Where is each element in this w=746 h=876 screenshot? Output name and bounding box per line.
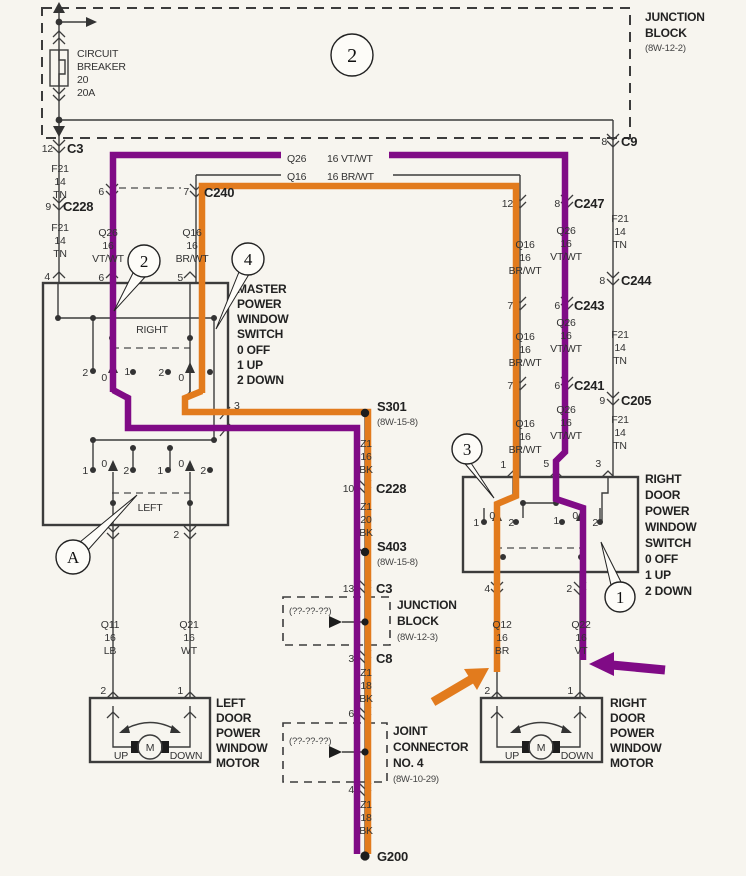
ground-g200-label: G200 [377, 849, 408, 864]
pin-number: 5 [543, 458, 549, 470]
wire-label-q26: 16 [102, 240, 114, 252]
wire-label-f21: 14 [54, 176, 66, 188]
wire-label-q16: Q16 [515, 239, 535, 251]
pin-number: 2 [484, 685, 490, 697]
right-motor-label: POWER [610, 726, 655, 740]
pin-number: 9 [45, 201, 51, 213]
bus-label-q26-spec: 16 VT/WT [327, 153, 373, 165]
connector-c244-label: C244 [621, 273, 652, 288]
right-switch-label: WINDOW [645, 520, 697, 534]
wiring-diagram-page: CIRCUIT BREAKER 20 20A JUNCTION BLOCK (8… [0, 0, 746, 871]
pin-number: 9 [599, 395, 605, 407]
callout-3-label: 3 [463, 440, 471, 459]
wire-label-q16: Q16 [515, 418, 535, 430]
pin-number: 8 [601, 136, 607, 148]
wire-label-f21: 14 [614, 226, 626, 238]
bus-label-q16-spec: 16 BR/WT [327, 171, 375, 183]
pin-number: 1 [177, 685, 183, 697]
bus-label-q16: Q16 [287, 171, 307, 183]
wire-label-q26: VT/WT [92, 253, 124, 265]
contact-number: 2 [82, 367, 88, 379]
arrow-right-icon [86, 17, 97, 27]
junction-block-mid-label: JUNCTION [397, 598, 457, 612]
right-switch-label: DOOR [645, 488, 681, 502]
motor-down-label: DOWN [170, 750, 202, 762]
purple-trace-ground [113, 390, 357, 854]
wire-label-f21: F21 [51, 163, 69, 175]
right-switch-label: SWITCH [645, 536, 691, 550]
wire-label-q26: 16 [560, 417, 572, 429]
wire-label-z1: BK [359, 527, 373, 539]
breaker-label: 20A [77, 87, 95, 99]
contact-number: 2 [592, 517, 598, 529]
wire-label-f21: TN [613, 355, 627, 367]
joint-connector-label: CONNECTOR [393, 740, 469, 754]
pin-number: 6 [348, 708, 354, 720]
breaker-label: 20 [77, 74, 89, 86]
wire-label-q26: Q26 [556, 225, 576, 237]
wire-label-q16: 16 [519, 344, 531, 356]
right-motor-label: WINDOW [610, 741, 662, 755]
splice-s301-label: S301 [377, 399, 407, 414]
joint-connector-unknown: (??-??-??) [289, 736, 331, 747]
wire-label-q22: VT [574, 645, 588, 657]
joint-connector-ref: (8W-10-29) [393, 774, 439, 785]
contact-number: 0 [178, 372, 184, 384]
wire-label-z1: 20 [360, 514, 372, 526]
contact-number: 2 [508, 517, 514, 529]
master-switch-label: SWITCH [237, 327, 283, 341]
master-switch-label: 1 UP [237, 358, 263, 372]
splice-s301-icon [361, 409, 369, 417]
wire-label-q16: 16 [519, 252, 531, 264]
ground-g200-icon [360, 851, 369, 860]
left-motor-label: DOOR [216, 711, 252, 725]
pin-number: 2 [100, 685, 106, 697]
component-boxes [43, 283, 638, 762]
wire-label-f21: 14 [614, 342, 626, 354]
wire-label-z1: Z1 [360, 501, 372, 513]
wire-label-z1: BK [359, 825, 373, 837]
joint-connector-arrow-icon [329, 746, 342, 758]
pin-number: 10 [343, 483, 355, 495]
contact-number: 0 [489, 510, 495, 522]
callout-2-master-label: 2 [140, 252, 148, 271]
wire-label-q16: Q16 [182, 227, 202, 239]
junction-block-top-label: JUNCTION [645, 10, 705, 24]
bus-label-q26: Q26 [287, 153, 307, 165]
wire-label-q16: BR/WT [176, 253, 210, 265]
left-motor-label: MOTOR [216, 756, 260, 770]
left-motor-label: POWER [216, 726, 261, 740]
wire-label-q26: Q26 [98, 227, 118, 239]
contact-number: 0 [101, 372, 107, 384]
master-switch-label: POWER [237, 297, 282, 311]
master-switch-label: WINDOW [237, 312, 289, 326]
pin-number: 7 [507, 380, 513, 392]
wire-label-q22: Q22 [571, 619, 591, 631]
splice-s301-ref: (8W-15-8) [377, 417, 418, 428]
right-motor-label: RIGHT [610, 696, 647, 710]
junction-block-mid-ref: (8W-12-3) [397, 632, 438, 643]
junction-block-top-outline [42, 8, 630, 138]
left-motor-label: LEFT [216, 696, 246, 710]
pin-number: 4 [484, 583, 490, 595]
pin-number: 7 [507, 300, 513, 312]
wire-label-q12: 16 [496, 632, 508, 644]
connector-c247-label: C247 [574, 196, 604, 211]
motor-up-label: UP [505, 750, 519, 762]
pin-number: 12 [502, 198, 514, 210]
wire-label-z1: Z1 [360, 799, 372, 811]
wire-label-q26: Q26 [556, 317, 576, 329]
contact-number: 0 [178, 458, 184, 470]
connector-c243-label: C243 [574, 298, 604, 313]
breaker-label: CIRCUIT [77, 48, 119, 60]
wire-label-q26: VT/WT [550, 430, 582, 442]
pin-number: 6 [98, 186, 104, 198]
purple-pointer-arrow [612, 665, 665, 670]
right-motor-label: DOOR [610, 711, 646, 725]
power-window-wiring-diagram: CIRCUIT BREAKER 20 20A JUNCTION BLOCK (8… [0, 0, 746, 871]
right-switch-label: RIGHT [645, 472, 682, 486]
purple-pointer-arrowhead [589, 652, 614, 676]
breaker-label: BREAKER [77, 61, 126, 73]
motor-m-label: M [537, 742, 546, 754]
contact-number: 1 [124, 366, 130, 378]
pin-number: 6 [554, 380, 560, 392]
pin-number: 7 [183, 186, 189, 198]
wire-label-f21: TN [613, 239, 627, 251]
pin-number: 13 [343, 583, 355, 595]
right-switch-label: 2 DOWN [645, 584, 692, 598]
motor-up-label: UP [114, 750, 128, 762]
wire-label-q11: Q11 [101, 619, 120, 631]
callout-a-label: A [67, 548, 80, 567]
wire-label-q12: BR [495, 645, 510, 657]
wire-label-z1: 16 [360, 451, 372, 463]
orange-pointer-arrow [433, 679, 472, 702]
joint-connector-label: JOINT [393, 724, 428, 738]
connector-c205-label: C205 [621, 393, 651, 408]
contact-number: 0 [572, 510, 578, 522]
arrow-down-icon [53, 126, 65, 137]
contact-number: 2 [200, 465, 206, 477]
contact-number: 1 [157, 465, 163, 477]
junction-block-top-ref: (8W-12-2) [645, 43, 686, 54]
wire-label-q21: 16 [183, 632, 195, 644]
pin-number: 2 [566, 583, 572, 595]
wire-label-q11: 16 [104, 632, 116, 644]
contact-number: 2 [158, 367, 164, 379]
connector-c241-label: C241 [574, 378, 604, 393]
pin-number: 6 [554, 300, 560, 312]
pin-number: 1 [500, 459, 506, 471]
left-motor-label: WINDOW [216, 741, 268, 755]
joint-connector-label: NO. 4 [393, 756, 424, 770]
junction-block-mid-unknown: (??-??-??) [289, 606, 331, 617]
connector-c3-mid-label: C3 [376, 581, 392, 596]
master-switch-label: MASTER [237, 282, 287, 296]
wire-label-f21: F21 [611, 414, 629, 426]
wire-label-z1: Z1 [360, 438, 372, 450]
wire-label-z1: 18 [360, 812, 372, 824]
splice-s403-icon [361, 548, 369, 556]
pin-number: 6 [98, 272, 104, 284]
pin-number: 2 [173, 529, 179, 541]
master-switch-label: 0 OFF [237, 343, 270, 357]
wire-label-q26: Q26 [556, 404, 576, 416]
wire-label-q26: 16 [560, 238, 572, 250]
wire-label-q26: 16 [560, 330, 572, 342]
dashed-outlines [42, 8, 630, 782]
contact-number: 1 [82, 465, 88, 477]
callout-1-label: 1 [616, 588, 624, 607]
contact-number: 0 [101, 458, 107, 470]
motor-m-label: M [146, 742, 155, 754]
right-switch-label: POWER [645, 504, 690, 518]
pin-number: 1 [567, 685, 573, 697]
junction-block-mid-label: BLOCK [397, 614, 439, 628]
connector-c228-label: C228 [63, 199, 93, 214]
wire-label-z1: Z1 [360, 667, 372, 679]
wire-label-q12: Q12 [492, 619, 512, 631]
contact-number: 1 [473, 517, 479, 529]
wire-label-f21: TN [613, 440, 627, 452]
wire-label-q22: 16 [575, 632, 587, 644]
pin-number: 4 [44, 271, 50, 283]
wire-label-q16: 16 [519, 431, 531, 443]
wire-label-q16: BR/WT [509, 444, 543, 456]
wire-label-f21: F21 [51, 222, 69, 234]
pin-number: 12 [42, 143, 54, 155]
wire-label-f21: F21 [611, 213, 629, 225]
connector-c3-label: C3 [67, 141, 83, 156]
wire-label-f21: 14 [614, 427, 626, 439]
wire-label-f21: 14 [54, 235, 66, 247]
wire-label-q21: WT [181, 645, 198, 657]
connector-c8-label: C8 [376, 651, 392, 666]
pin-number: 3 [348, 653, 354, 665]
wire-label-z1: BK [359, 693, 373, 705]
wire-label-q21: Q21 [179, 619, 199, 631]
wire-label-z1: 18 [360, 680, 372, 692]
right-switch-label: 1 UP [645, 568, 671, 582]
contact-number: 2 [123, 465, 129, 477]
callout-2-top-label: 2 [347, 45, 357, 67]
wire-label-q16: 16 [186, 240, 198, 252]
symbols [50, 2, 619, 796]
callout-4-label: 4 [244, 250, 253, 269]
right-motor-label: MOTOR [610, 756, 654, 770]
wire-label-q26: VT/WT [550, 251, 582, 263]
contact-number: 1 [553, 515, 559, 527]
connector-c228-mid-label: C228 [376, 481, 406, 496]
pin-number: 5 [177, 272, 183, 284]
wire-label-z1: BK [359, 464, 373, 476]
junction-block-top-label: BLOCK [645, 26, 687, 40]
connector-c240-label: C240 [204, 185, 234, 200]
motor-down-label: DOWN [561, 750, 593, 762]
master-left-section-label: LEFT [138, 502, 164, 514]
connector-c9-label: C9 [621, 134, 637, 149]
right-switch-label: 0 OFF [645, 552, 678, 566]
pin-number: 8 [599, 275, 605, 287]
junction-block-arrow-icon [329, 616, 342, 628]
master-switch-label: 2 DOWN [237, 373, 284, 387]
wire-label-f21: TN [53, 248, 67, 260]
pin-number: 8 [554, 198, 560, 210]
wire-label-f21: F21 [611, 329, 629, 341]
wire-label-q16: BR/WT [509, 357, 543, 369]
pointer-arrows [433, 652, 665, 702]
wire-label-q16: BR/WT [509, 265, 543, 277]
wire-label-q16: Q16 [515, 331, 535, 343]
pin-number: 3 [234, 400, 240, 412]
splice-s403-ref: (8W-15-8) [377, 557, 418, 568]
master-right-section-label: RIGHT [136, 324, 168, 336]
wire-label-q11: LB [104, 645, 117, 657]
pin-number: 3 [595, 458, 601, 470]
splice-s403-label: S403 [377, 539, 407, 554]
pin-number: 4 [348, 784, 354, 796]
wire-label-q26: VT/WT [550, 343, 582, 355]
